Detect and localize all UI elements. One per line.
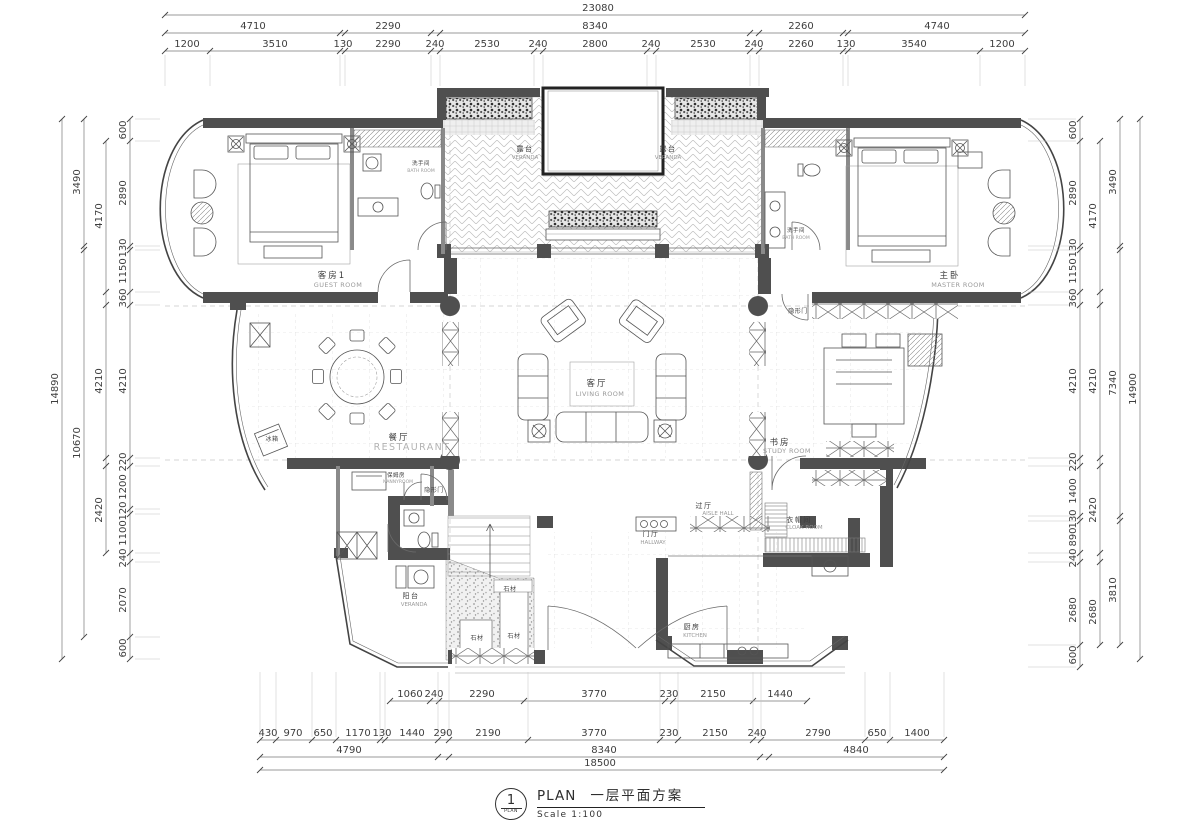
- master-headboard: [854, 138, 950, 147]
- guest-bench: [264, 246, 322, 258]
- dim-label: 4170: [94, 203, 105, 228]
- dim-label: 120: [118, 501, 129, 520]
- room-label-cn: 过厅: [696, 501, 713, 510]
- dim-label: 2150: [700, 689, 725, 700]
- dim-label: 130: [372, 728, 391, 739]
- dim-label: 3490: [72, 169, 83, 194]
- dim-label: 4840: [843, 745, 868, 756]
- nightstand-lamp: [952, 140, 968, 156]
- dim-label: 650: [313, 728, 332, 739]
- sheet-number-circle: 1 PLAN: [495, 788, 527, 820]
- dim-label: 2420: [1088, 497, 1099, 522]
- terrace-notch: [543, 88, 663, 174]
- dim-label: 2530: [474, 39, 499, 50]
- room-label-cn: 客房1: [318, 270, 346, 281]
- room-label-en: VERANDA: [655, 155, 682, 161]
- dim-label: 3770: [581, 689, 606, 700]
- dim-label: 240: [425, 39, 444, 50]
- dim-label: 3490: [1108, 169, 1119, 194]
- floor-plan-drawing: 2308047102290834022604740120035101302290…: [0, 0, 1200, 839]
- dim-label: 230: [659, 728, 678, 739]
- dim-label: 220: [118, 452, 129, 471]
- dim-label: 1150: [118, 258, 129, 283]
- annotation-label: 隐形门: [788, 307, 808, 315]
- floor-plan-sheet: 2308047102290834022604740120035101302290…: [0, 0, 1200, 839]
- dim-label: 14900: [1128, 373, 1139, 405]
- room-label-cn: 洗手间: [412, 159, 430, 167]
- dim-label: 130: [118, 238, 129, 257]
- dim-label: 130: [333, 39, 352, 50]
- room-label-cn: 衣帽间: [786, 515, 812, 524]
- hall-console: [636, 517, 676, 531]
- dim-label: 2260: [788, 39, 813, 50]
- dim-label: 240: [118, 548, 129, 567]
- dim-label: 240: [424, 689, 443, 700]
- bay-chair: [988, 228, 1010, 256]
- dim-label: 3510: [262, 39, 287, 50]
- room-label-cn: 客厅: [586, 378, 607, 389]
- dim-label: 650: [867, 728, 886, 739]
- dim-label: 1150: [1068, 258, 1079, 283]
- shower: [765, 130, 848, 147]
- flower-box: [549, 211, 657, 227]
- column: [748, 296, 768, 316]
- dim-label: 240: [747, 728, 766, 739]
- dim-label: 18500: [584, 758, 616, 769]
- room-label-cn: 露台: [517, 144, 534, 153]
- room-label-cn: 阳台: [403, 591, 420, 600]
- dim-label: 8340: [591, 745, 616, 756]
- nightstand-lamp: [228, 136, 244, 152]
- dim-label: 360: [1068, 288, 1079, 307]
- room-label-en: BATH ROOM: [407, 168, 435, 174]
- powder-room-fixtures: [404, 510, 438, 548]
- dim-label: 600: [1068, 645, 1079, 664]
- dim-label: 890: [1068, 527, 1079, 546]
- dim-label: 14890: [50, 373, 61, 405]
- dim-label: 7340: [1108, 370, 1119, 395]
- dim-label: 130: [1068, 238, 1079, 257]
- room-label-en: HALLWAY: [640, 540, 666, 546]
- titleblock: 1 PLAN PLAN一层平面方案 Scale 1:100: [495, 784, 695, 834]
- drawing-title-en: PLAN: [537, 788, 576, 804]
- dim-label: 4710: [240, 21, 265, 32]
- bay-chair: [988, 170, 1010, 198]
- annotation-label: 冰箱: [265, 435, 278, 443]
- bay-chair: [194, 228, 216, 256]
- sheet-number: 1: [501, 794, 522, 809]
- master-bench: [872, 250, 930, 262]
- dim-label: 240: [641, 39, 660, 50]
- drawing-title: PLAN一层平面方案: [537, 784, 705, 804]
- dim-label: 130: [1068, 509, 1079, 528]
- stairs-arrow: [487, 524, 494, 578]
- dim-label: 2890: [118, 180, 129, 205]
- dim-label: 4170: [1088, 203, 1099, 228]
- dim-label: 2260: [788, 21, 813, 32]
- room-label-cn: 门厅: [643, 529, 660, 538]
- dim-label: 2790: [805, 728, 830, 739]
- bookshelf: [908, 334, 942, 366]
- dim-label: 1060: [397, 689, 422, 700]
- drawing-scale: Scale 1:100: [537, 810, 705, 820]
- dim-label: 1400: [904, 728, 929, 739]
- dim-label: 1400: [1068, 478, 1079, 503]
- dim-label: 4210: [94, 368, 105, 393]
- dim-label: 1440: [399, 728, 424, 739]
- room-label-en: CLOAK ROOM: [785, 525, 823, 531]
- master-carpet: [846, 166, 958, 266]
- room-label-en: VERANDA: [401, 602, 428, 608]
- room-label-cn: 露台: [660, 144, 677, 153]
- room-label-en: STUDY ROOM: [763, 447, 811, 455]
- dim-label: 4210: [1068, 368, 1079, 393]
- dim-label: 360: [118, 288, 129, 307]
- room-label-cn: 主卧: [939, 270, 960, 281]
- room-label-en: NANNYROOM: [383, 479, 413, 485]
- cloak-rail: [765, 538, 865, 552]
- stone-slab: [500, 590, 528, 654]
- nanny-desk: [352, 472, 386, 490]
- dim-label: 4740: [924, 21, 949, 32]
- room-label-en: LIVING ROOM: [576, 390, 625, 398]
- annotation-label: 石材: [503, 585, 516, 593]
- dim-label: 2290: [375, 39, 400, 50]
- title-text: PLAN一层平面方案 Scale 1:100: [537, 784, 705, 834]
- dim-label: 240: [528, 39, 547, 50]
- dim-label: 600: [1068, 120, 1079, 139]
- dim-label: 4210: [118, 368, 129, 393]
- dim-label: 3770: [581, 728, 606, 739]
- dim-label: 2420: [94, 497, 105, 522]
- dim-label: 230: [659, 689, 678, 700]
- dim-label: 1100: [118, 520, 129, 545]
- dim-label: 2190: [475, 728, 500, 739]
- extension-lines: [165, 55, 1025, 86]
- room-label-en: GUEST ROOM: [314, 281, 362, 289]
- dim-label: 1200: [174, 39, 199, 50]
- dim-label: 2680: [1088, 599, 1099, 624]
- washer: [408, 566, 434, 588]
- annotation-label: 隐形门: [424, 486, 444, 494]
- dim-label: 600: [118, 120, 129, 139]
- annotation-label: 石材: [507, 632, 520, 640]
- dim-label: 1170: [345, 728, 370, 739]
- bay-chair: [194, 170, 216, 198]
- guest-carpet: [238, 164, 350, 264]
- sheet-circle-caption: PLAN: [504, 809, 518, 815]
- dim-label: 2150: [702, 728, 727, 739]
- dim-label: 1200: [989, 39, 1014, 50]
- room-label-cn: 厨房: [684, 622, 701, 631]
- planter-left: [446, 98, 532, 119]
- dim-label: 2800: [582, 39, 607, 50]
- guest-headboard: [246, 134, 342, 143]
- dim-label: 8340: [582, 21, 607, 32]
- dim-label: 2890: [1068, 180, 1079, 205]
- dim-label: 290: [433, 728, 452, 739]
- drawing-title-cn: 一层平面方案: [590, 788, 683, 804]
- room-label-en: MASTER ROOM: [931, 281, 985, 289]
- terrace: [443, 88, 763, 254]
- bay-table: [191, 202, 213, 224]
- cloak-shelves: [765, 503, 787, 537]
- column: [440, 296, 460, 316]
- dim-label: 3810: [1108, 577, 1119, 602]
- master-wardrobe: [812, 303, 958, 319]
- dim-label: 2530: [690, 39, 715, 50]
- room-label-en: VERANDA: [512, 155, 539, 161]
- dim-label: 3540: [901, 39, 926, 50]
- dim-label: 1440: [767, 689, 792, 700]
- title-rule: [537, 807, 705, 808]
- planter-right: [675, 98, 761, 119]
- dim-label: 2290: [469, 689, 494, 700]
- dim-label: 4790: [336, 745, 361, 756]
- room-label-cn: 洗手间: [787, 226, 805, 234]
- dim-label: 4210: [1088, 368, 1099, 393]
- dim-label: 130: [836, 39, 855, 50]
- window-sill: [546, 229, 660, 240]
- shower: [354, 130, 441, 147]
- extension-lines: [135, 119, 160, 659]
- dim-label: 430: [258, 728, 277, 739]
- dim-label: 970: [283, 728, 302, 739]
- dim-label: 1200: [118, 474, 129, 499]
- dim-label: 2680: [1068, 597, 1079, 622]
- room-label-en: KITCHEN: [683, 633, 707, 639]
- dim-label: 240: [1068, 548, 1079, 567]
- room-label-en: BATH ROOM: [782, 235, 810, 241]
- master-chair: [958, 152, 982, 168]
- room-label-en: RESTAURANT: [374, 442, 451, 453]
- bay-table: [993, 202, 1015, 224]
- dim-label: 23080: [582, 3, 614, 14]
- dim-label: 10670: [72, 427, 83, 459]
- dim-label: 220: [1068, 452, 1079, 471]
- room-label-cn: 保姆房: [387, 471, 405, 479]
- dim-label: 600: [118, 638, 129, 657]
- room-label-en: AISLE HALL: [702, 511, 734, 517]
- dim-label: 2290: [375, 21, 400, 32]
- dim-label: 2070: [118, 587, 129, 612]
- annotation-label: 石材: [470, 634, 483, 642]
- dim-label: 240: [744, 39, 763, 50]
